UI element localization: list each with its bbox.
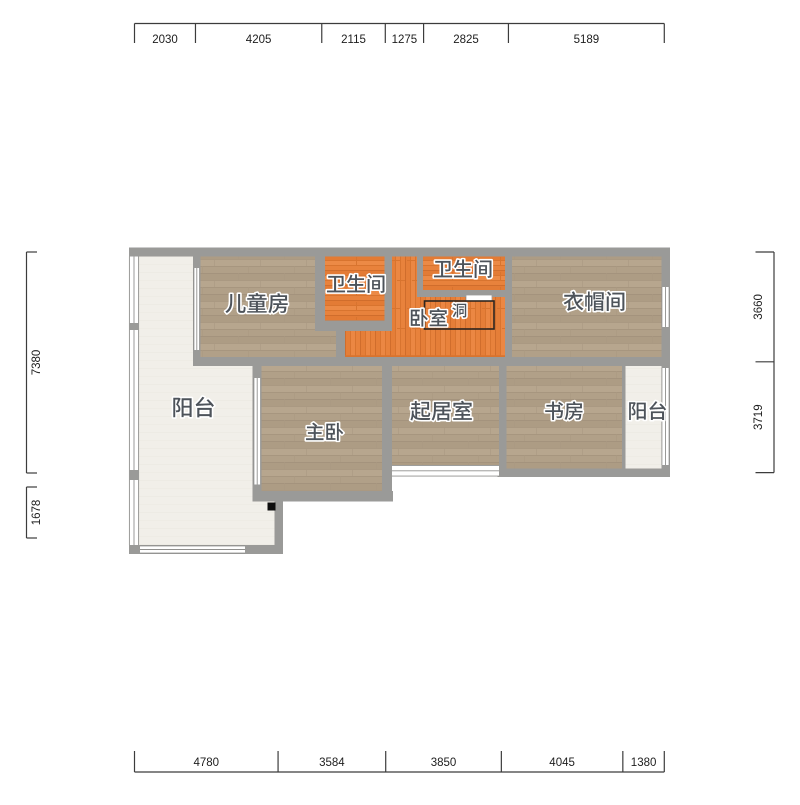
svg-text:1380: 1380 [631,757,657,769]
svg-text:1275: 1275 [392,34,418,46]
svg-text:3584: 3584 [319,757,345,769]
svg-text:4045: 4045 [549,757,575,769]
svg-text:2825: 2825 [453,34,479,46]
svg-text:5189: 5189 [574,34,600,46]
svg-text:3660: 3660 [753,294,765,320]
svg-text:3850: 3850 [431,757,457,769]
svg-text:1678: 1678 [31,500,43,526]
svg-text:7380: 7380 [31,350,43,376]
svg-text:4205: 4205 [246,34,272,46]
svg-text:4780: 4780 [194,757,220,769]
svg-text:2115: 2115 [341,34,366,46]
svg-text:3719: 3719 [753,404,765,430]
svg-text:2030: 2030 [152,34,178,46]
